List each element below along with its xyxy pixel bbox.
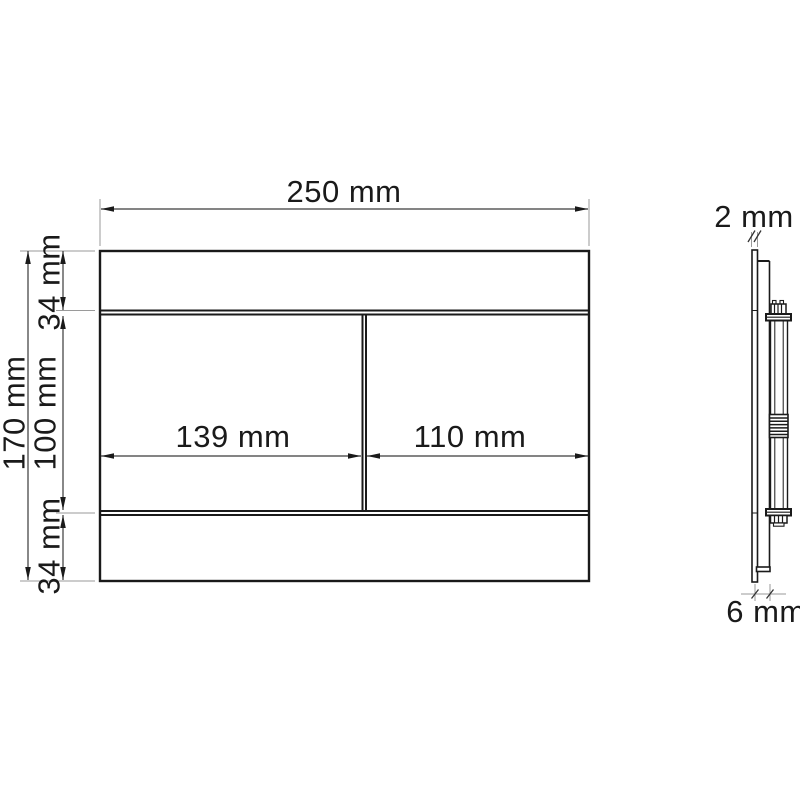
technical-drawing-page: 250 mm 170 mm 34 mm 100 mm 34 mm xyxy=(0,0,800,801)
width-dimension-label: 250 mm xyxy=(287,174,402,209)
plate-outline xyxy=(100,251,589,581)
depth-dimension-label: 6 mm xyxy=(726,594,800,629)
lower-bolt-step xyxy=(774,523,785,526)
width-arrow-left xyxy=(101,206,114,212)
side-back-frame-foot xyxy=(757,567,771,572)
side-front-plate xyxy=(752,250,758,582)
right-button-dimension-label: 110 mm xyxy=(414,419,527,454)
thickness-dimension-label: 2 mm xyxy=(714,199,794,234)
top-strip-dimension-label: 34 mm xyxy=(32,233,67,330)
side-view xyxy=(752,250,791,582)
front-view xyxy=(100,251,589,581)
bottom-strip-dimension-label: 34 mm xyxy=(32,497,67,594)
button-area-dimension-label: 100 mm xyxy=(28,356,63,471)
height-arrow-top xyxy=(25,251,31,264)
height-arrow-bottom xyxy=(25,567,31,580)
flush-plate-drawing: 250 mm 170 mm 34 mm 100 mm 34 mm xyxy=(0,0,800,801)
left-button-dimension-label: 139 mm xyxy=(176,419,291,454)
width-arrow-right xyxy=(575,206,588,212)
